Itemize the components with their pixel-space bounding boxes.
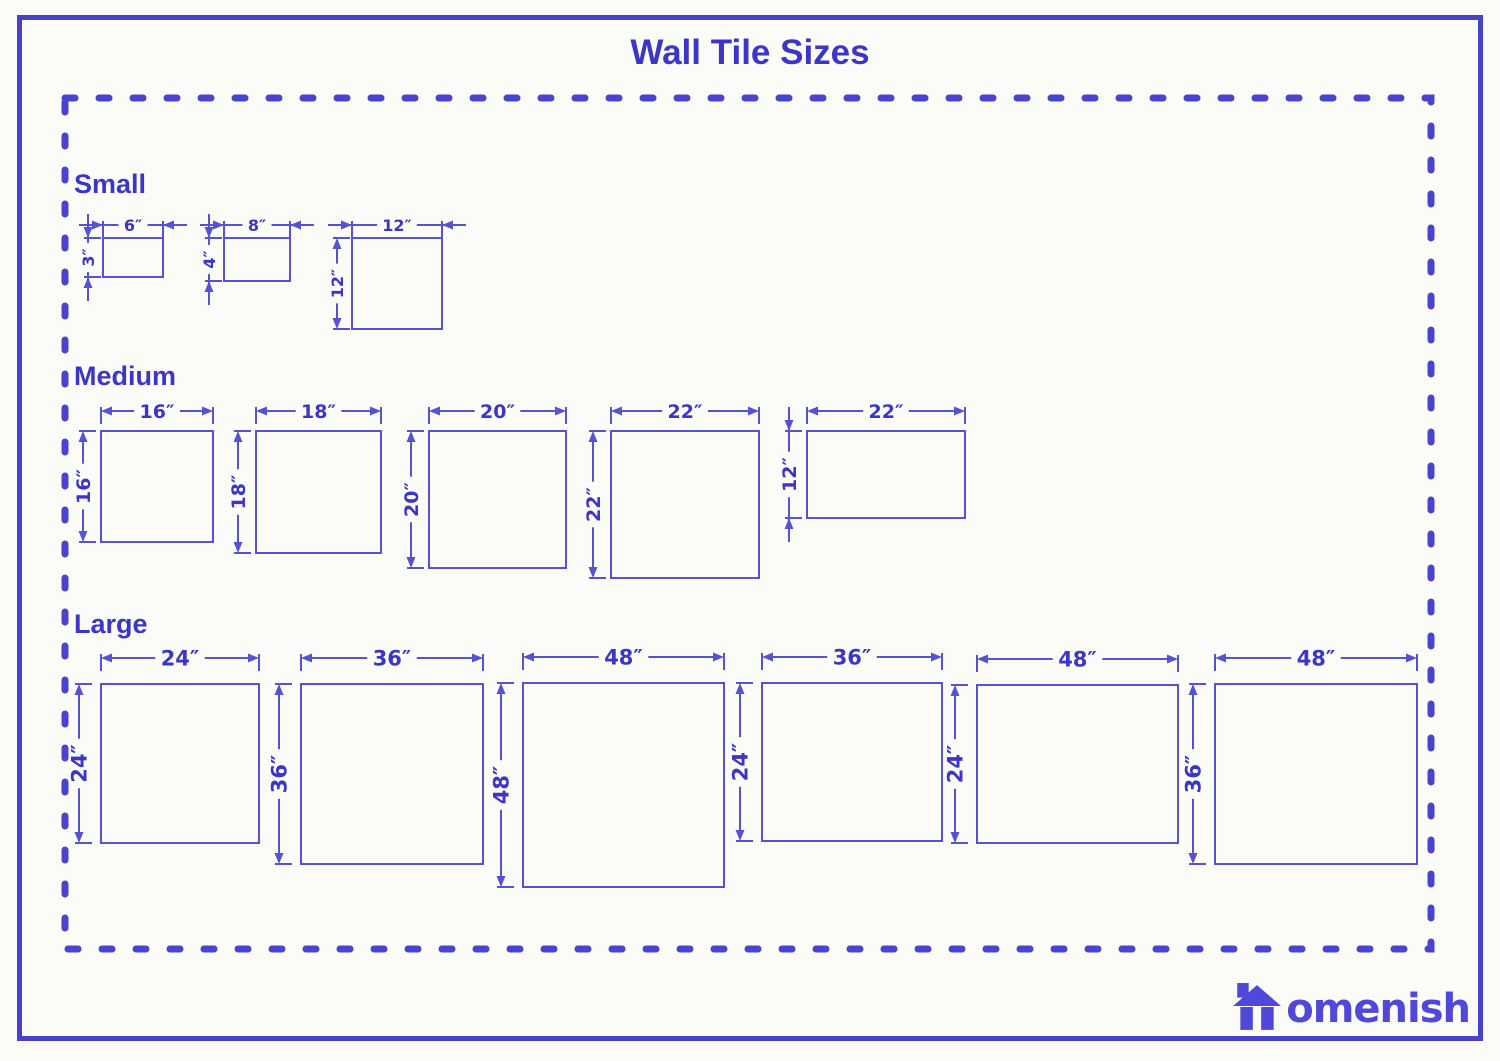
tile-rect-20x20	[429, 431, 566, 568]
tile-rect-22x12	[807, 431, 965, 518]
dim-width-22x12: 22″	[807, 401, 965, 424]
section-large: Large24″24″36″36″48″48″36″24″48″24″48″36…	[68, 609, 1417, 887]
dim-height-48x48-label: 48″	[490, 766, 514, 805]
dim-height-8x4-label: 4″	[200, 250, 219, 268]
dim-width-22x12-label: 22″	[869, 401, 904, 423]
tile-22x12: 22″12″	[779, 401, 965, 542]
tile-rect-36x36	[301, 684, 483, 864]
tile-rect-6x3	[103, 238, 163, 277]
dim-height-22x22-label: 22″	[583, 487, 605, 522]
dim-width-6x3: 6″	[79, 216, 187, 238]
tile-18x18: 18″18″	[228, 401, 381, 553]
dim-width-24x24: 24″	[101, 647, 259, 671]
dim-width-48x36-label: 48″	[1297, 647, 1336, 671]
dim-width-8x4: 8″	[200, 216, 314, 238]
dim-height-18x18-label: 18″	[228, 474, 250, 509]
dim-width-18x18: 18″	[256, 401, 381, 424]
tile-48x48: 48″48″	[490, 646, 724, 887]
dim-width-48x24: 48″	[977, 648, 1178, 672]
dim-height-22x22: 22″	[583, 431, 606, 578]
dim-width-16x16-label: 16″	[140, 401, 175, 423]
dim-height-48x24: 24″	[944, 685, 968, 843]
dim-width-20x20: 20″	[429, 401, 566, 424]
tile-rect-18x18	[256, 431, 381, 553]
dim-width-6x3-label: 6″	[124, 216, 142, 235]
tile-8x4: 8″4″	[200, 214, 314, 305]
dim-height-12x12-label: 12″	[328, 269, 347, 298]
tile-rect-12x12	[352, 238, 442, 329]
dim-width-22x22: 22″	[611, 401, 759, 424]
page: Wall Tile Sizes Small6″3″8″4″12″12″Mediu…	[0, 0, 1500, 1061]
dim-height-24x24: 24″	[68, 684, 92, 843]
dim-height-16x16: 16″	[73, 431, 96, 542]
tile-rect-16x16	[101, 431, 213, 542]
dim-height-6x3-label: 3″	[79, 248, 98, 266]
dim-width-12x12: 12″	[328, 216, 466, 238]
dim-width-48x24-label: 48″	[1058, 648, 1097, 672]
dim-width-36x36: 36″	[301, 647, 483, 671]
logo-text: omenish	[1286, 986, 1470, 1032]
tile-rect-8x4	[224, 238, 290, 281]
section-label-small: Small	[74, 169, 146, 199]
wall-tile-diagram: Small6″3″8″4″12″12″Medium16″16″18″18″20″…	[0, 0, 1500, 1061]
dim-height-48x36: 36″	[1182, 684, 1206, 864]
dim-height-20x20: 20″	[401, 431, 424, 568]
tile-20x20: 20″20″	[401, 401, 566, 568]
dim-width-36x24-label: 36″	[833, 646, 872, 670]
house-icon	[1231, 982, 1283, 1032]
dim-height-20x20-label: 20″	[401, 482, 423, 517]
section-small: Small6″3″8″4″12″12″	[74, 169, 466, 329]
dim-height-48x36-label: 36″	[1182, 755, 1206, 794]
tile-48x24: 48″24″	[944, 648, 1178, 843]
dim-width-22x22-label: 22″	[668, 401, 703, 423]
dim-width-36x24: 36″	[762, 646, 942, 670]
dim-height-22x12-label: 12″	[779, 457, 801, 492]
tile-48x36: 48″36″	[1182, 647, 1417, 864]
tile-12x12: 12″12″	[328, 216, 466, 329]
dim-width-16x16: 16″	[101, 401, 213, 424]
dim-width-18x18-label: 18″	[301, 401, 336, 423]
tile-rect-48x36	[1215, 684, 1417, 864]
dim-height-48x48: 48″	[490, 683, 514, 887]
dim-width-48x48: 48″	[523, 646, 724, 670]
tile-22x22: 22″22″	[583, 401, 759, 578]
dim-height-12x12: 12″	[328, 238, 350, 329]
section-label-medium: Medium	[74, 361, 176, 391]
dim-height-36x36-label: 36″	[268, 755, 292, 794]
tile-rect-48x24	[977, 685, 1178, 843]
dim-width-20x20-label: 20″	[480, 401, 515, 423]
section-label-large: Large	[74, 609, 148, 639]
dim-height-18x18: 18″	[228, 431, 251, 553]
tile-rect-22x22	[611, 431, 759, 578]
section-medium: Medium16″16″18″18″20″20″22″22″22″12″	[73, 361, 965, 578]
dim-height-36x24-label: 24″	[729, 743, 753, 782]
dim-height-8x4: 4″	[200, 214, 222, 305]
tile-rect-24x24	[101, 684, 259, 843]
tile-6x3: 6″3″	[79, 214, 187, 301]
dim-height-24x24-label: 24″	[68, 744, 92, 783]
dim-height-48x24-label: 24″	[944, 745, 968, 784]
dim-height-16x16-label: 16″	[73, 469, 95, 504]
dim-height-22x12: 12″	[779, 407, 802, 542]
dim-width-8x4-label: 8″	[248, 216, 266, 235]
dim-height-36x36: 36″	[268, 684, 292, 864]
dim-width-48x36: 48″	[1215, 647, 1417, 671]
tile-rect-36x24	[762, 683, 942, 841]
tile-16x16: 16″16″	[73, 401, 213, 542]
dim-width-24x24-label: 24″	[161, 647, 200, 671]
tile-rect-48x48	[523, 683, 724, 887]
tile-36x24: 36″24″	[729, 646, 942, 841]
dashed-frame	[65, 98, 1431, 949]
tile-24x24: 24″24″	[68, 647, 259, 843]
dim-width-36x36-label: 36″	[373, 647, 412, 671]
dim-height-36x24: 24″	[729, 683, 753, 841]
dim-width-48x48-label: 48″	[604, 646, 643, 670]
dim-width-12x12-label: 12″	[382, 216, 411, 235]
homenish-logo: omenish	[1231, 982, 1470, 1032]
tile-36x36: 36″36″	[268, 647, 483, 864]
